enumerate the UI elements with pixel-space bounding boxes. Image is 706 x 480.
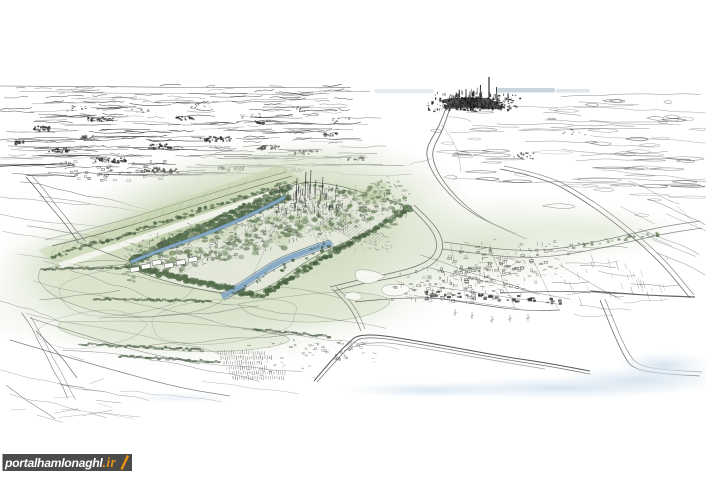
svg-text:portalhamlonaghl: portalhamlonaghl — [4, 456, 103, 470]
svg-text:.ir: .ir — [103, 455, 117, 470]
